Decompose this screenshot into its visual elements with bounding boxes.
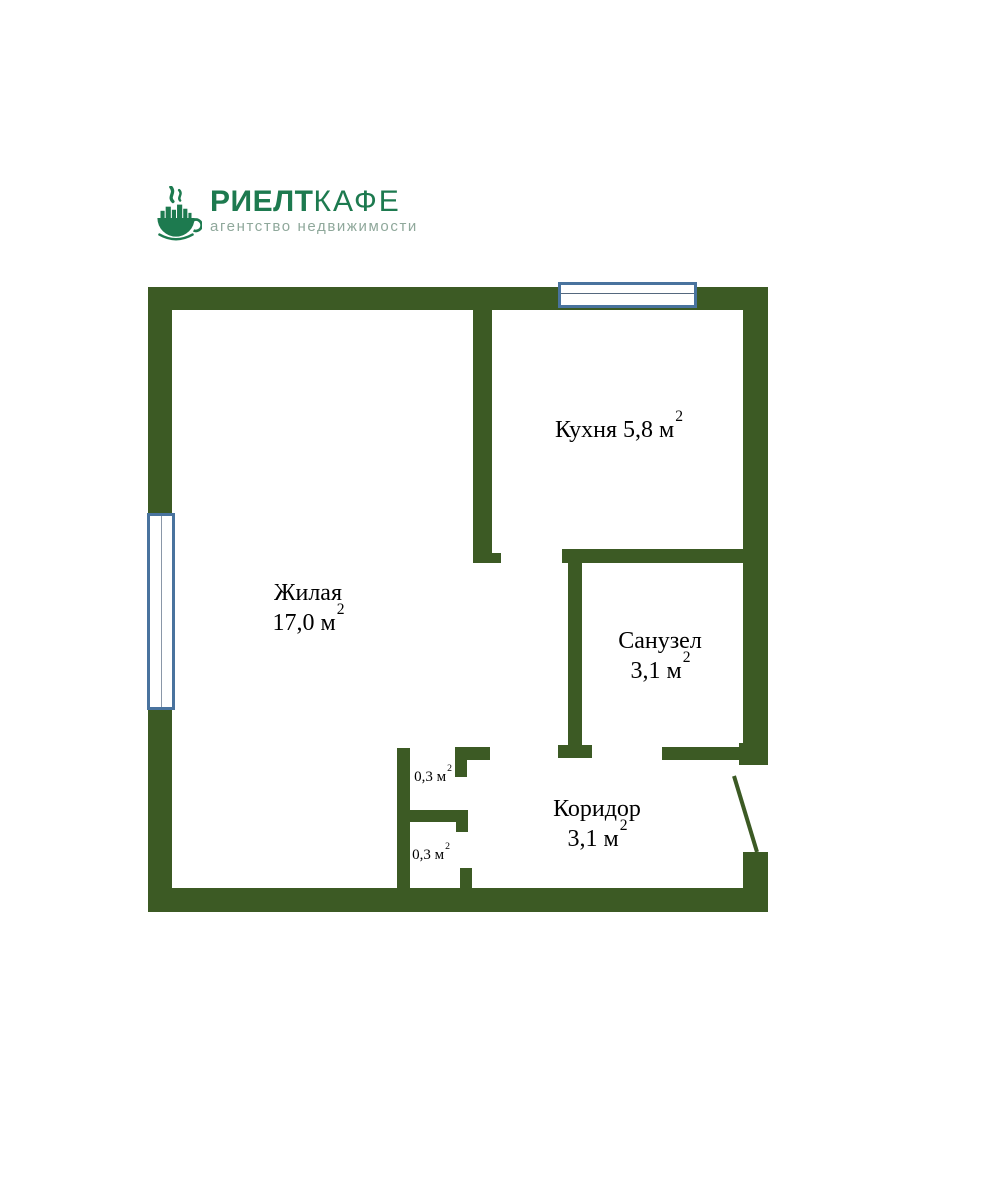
entrance-door-leaf-icon xyxy=(720,768,765,858)
window-left xyxy=(147,513,175,710)
steam-icon xyxy=(171,187,173,201)
wall-bathroom-bottom-right xyxy=(662,747,743,760)
agency-logo: РИЕЛТКАФЕ агентство недвижимости xyxy=(150,186,418,248)
window-top-glass-divider xyxy=(561,293,694,294)
wall-living-kitchen-divider-jamb xyxy=(488,553,501,563)
brand-tagline: агентство недвижимости xyxy=(210,219,418,235)
room-label-closet-lower: 0,3 м2 xyxy=(403,846,458,864)
wall-closet-bottom-jamb xyxy=(460,868,472,888)
room-label-living: Жилая 17,0 м2 xyxy=(233,578,383,638)
window-top xyxy=(558,282,697,308)
room-label-bathroom: Санузел 3,1 м2 xyxy=(585,626,735,686)
city-skyline-icon xyxy=(161,205,192,218)
wall-kitchen-bathroom-top xyxy=(562,549,743,563)
room-label-corridor: Коридор 3,1 м2 xyxy=(522,794,672,854)
brand-name-light: КАФЕ xyxy=(313,185,400,218)
brand-name: РИЕЛТКАФЕ xyxy=(210,186,418,218)
room-label-kitchen: Кухня 5,8 м2 xyxy=(526,415,711,445)
wall-closet-divider-tab xyxy=(456,810,468,832)
coffee-cup-city-icon xyxy=(150,186,202,248)
wall-living-kitchen-divider xyxy=(473,310,492,563)
window-left-glass-divider xyxy=(161,516,162,707)
brand-name-bold: РИЕЛТ xyxy=(210,185,313,218)
entrance-door-top-jamb xyxy=(739,743,768,765)
wall-bathroom-left xyxy=(568,563,582,747)
wall-bathroom-bottom-left-jamb xyxy=(558,745,592,758)
room-label-closet-upper: 0,3 м2 xyxy=(405,768,460,786)
wall-outer-bottom xyxy=(148,888,768,912)
